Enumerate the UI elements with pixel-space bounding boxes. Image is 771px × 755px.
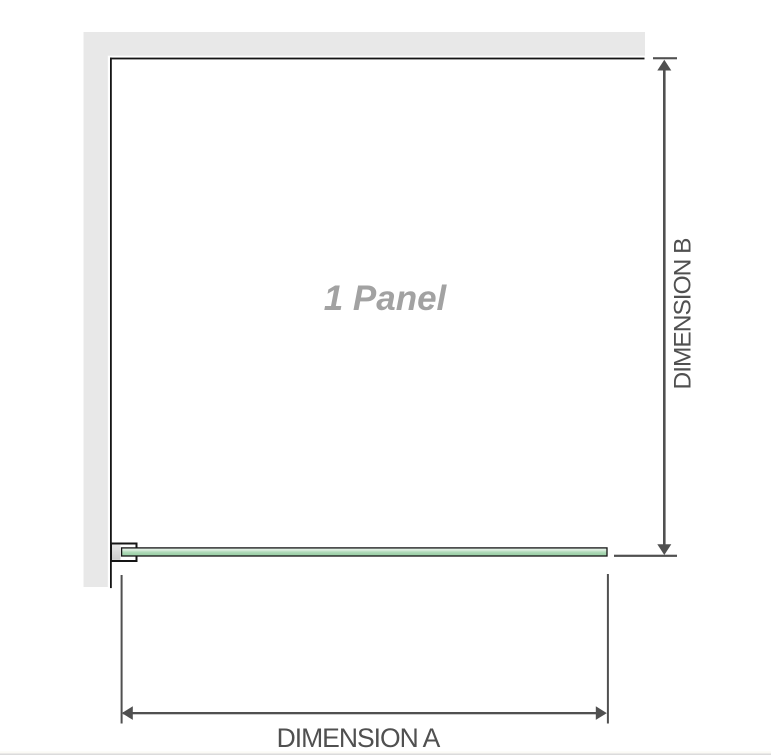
svg-text:DIMENSION B: DIMENSION B	[669, 238, 696, 390]
svg-text:1 Panel: 1 Panel	[324, 279, 448, 318]
svg-text:DIMENSION A: DIMENSION A	[277, 723, 441, 753]
